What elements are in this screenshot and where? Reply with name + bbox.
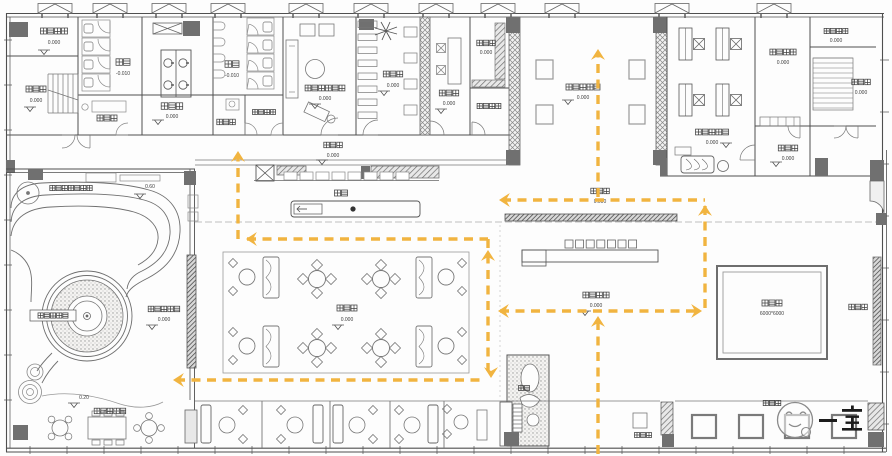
svg-text:0.000: 0.000 (30, 98, 43, 104)
svg-text:0.000: 0.000 (706, 140, 719, 146)
svg-text:0.000: 0.000 (48, 40, 61, 46)
svg-text:-0.010: -0.010 (116, 71, 130, 77)
svg-text:0.000: 0.000 (443, 101, 456, 107)
svg-text:0.000: 0.000 (158, 317, 171, 323)
svg-text:0.000: 0.000 (319, 96, 332, 102)
svg-text:0.20: 0.20 (79, 395, 89, 401)
svg-text:0.60: 0.60 (145, 184, 155, 190)
svg-text:0.000: 0.000 (855, 90, 868, 96)
svg-text:0.000: 0.000 (777, 60, 790, 66)
svg-text:0.000: 0.000 (327, 153, 340, 159)
svg-text:0.000: 0.000 (782, 156, 795, 162)
svg-text:0.000: 0.000 (480, 50, 493, 56)
svg-text:6000*6000: 6000*6000 (760, 311, 784, 317)
svg-text:0.000: 0.000 (830, 38, 843, 44)
svg-text:0.000: 0.000 (166, 114, 179, 120)
svg-text:0.000: 0.000 (590, 303, 603, 309)
svg-text:0.000: 0.000 (341, 317, 354, 323)
svg-text:-0.010: -0.010 (225, 73, 239, 79)
svg-text:0.000: 0.000 (387, 83, 400, 89)
svg-text:0.000: 0.000 (577, 95, 590, 101)
